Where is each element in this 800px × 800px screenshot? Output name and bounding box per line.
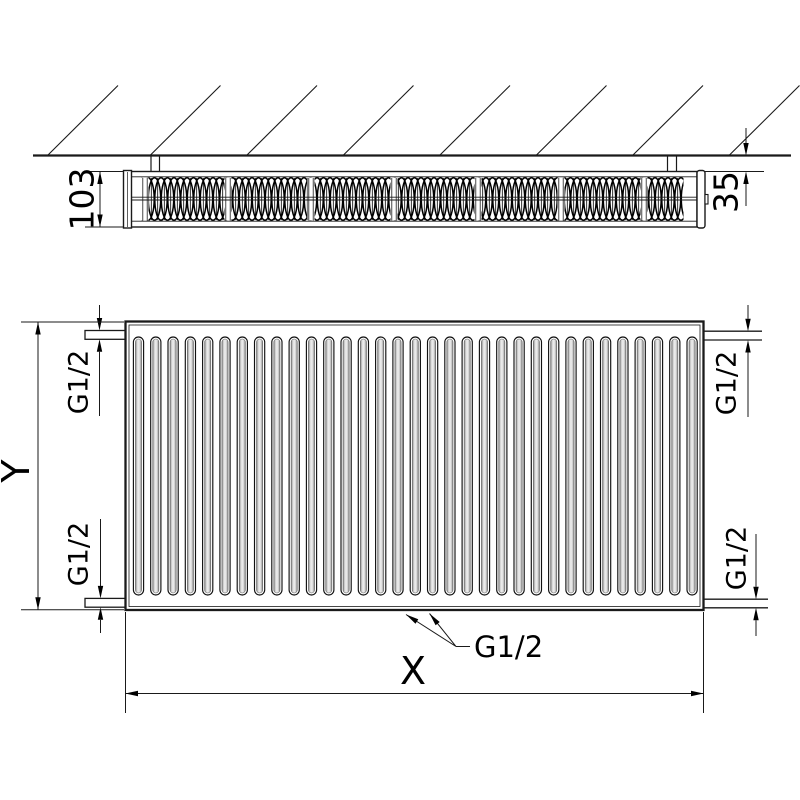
end-plate-right — [697, 171, 705, 229]
thread-label-top-right: G1/2 — [712, 351, 743, 415]
top-view: 103 35 — [33, 86, 800, 231]
connection-stub-bottom-left — [85, 598, 126, 607]
dimension-width-x: X — [126, 612, 704, 713]
hatch-line — [247, 86, 317, 156]
wall-distance-dim-label: 35 — [707, 171, 746, 213]
thread-label-top-left: G1/2 — [64, 350, 95, 414]
radiator-front-panel — [126, 322, 704, 611]
wall-hatch — [48, 86, 800, 156]
height-dim-label: Y — [0, 459, 38, 484]
leader-bottom-connections: G1/2 — [406, 614, 543, 665]
dimension-height-y: Y — [0, 322, 124, 610]
radiator-top-view — [124, 171, 709, 229]
convector-fins — [142, 177, 684, 221]
connection-stub-bottom-right — [704, 599, 769, 608]
dimension-thread-top-right: G1/2 — [712, 305, 751, 417]
connection-stub-top-left — [85, 331, 126, 340]
width-dim-label: X — [400, 649, 426, 693]
depth-dim-label: 103 — [63, 168, 102, 231]
dimension-wall-distance-35: 35 — [705, 128, 764, 213]
hatch-line — [344, 86, 414, 156]
radiator-technical-drawing: 103 35 — [0, 0, 800, 800]
front-view: G1/2 G1/2 G1/2 G1/2 — [0, 305, 768, 713]
thread-label-bottom-left: G1/2 — [64, 522, 95, 586]
hatch-line — [537, 86, 607, 156]
dimension-depth-103: 103 — [63, 168, 124, 231]
mounting-bracket-right — [668, 156, 677, 171]
thread-label-bottom-right: G1/2 — [722, 526, 753, 590]
drawing-svg: 103 35 — [0, 0, 800, 800]
connection-stub-top-right — [704, 331, 763, 340]
dimension-thread-bottom-right: G1/2 — [722, 526, 759, 636]
hatch-line — [48, 86, 118, 156]
hatch-line — [730, 86, 800, 156]
arrowhead-down — [743, 143, 748, 156]
mounting-bracket-left — [151, 156, 160, 171]
bottom-thread-label: G1/2 — [474, 630, 543, 664]
hatch-line — [440, 86, 510, 156]
hatch-line — [151, 86, 221, 156]
dimension-thread-bottom-left: G1/2 — [64, 519, 104, 633]
hatch-line — [633, 86, 703, 156]
